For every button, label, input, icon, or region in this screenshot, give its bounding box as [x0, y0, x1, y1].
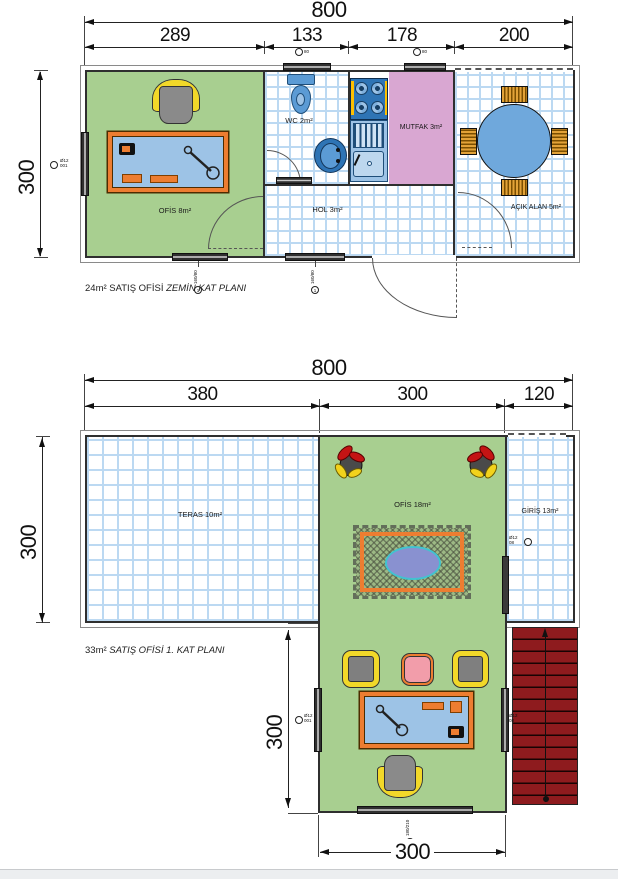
tag-left-window: Ø12001	[60, 159, 69, 169]
ext-line	[288, 813, 318, 814]
tag-circle	[295, 716, 303, 724]
tag-bottom-door18: 180/210	[406, 816, 411, 836]
dining-chair-left	[460, 128, 477, 155]
tick	[36, 622, 50, 623]
bottom-strip	[0, 869, 618, 879]
first-dim-seg3: 120	[505, 385, 573, 406]
tag-window-hol: 160/80	[311, 266, 316, 284]
first-dim-total: 800	[85, 356, 573, 380]
tick	[34, 257, 48, 258]
first-dim-inner: 300	[263, 690, 287, 750]
acik-door-dash	[462, 247, 492, 248]
window-top-mutfak	[404, 63, 446, 71]
tag-circle	[295, 48, 303, 56]
plant-icon	[330, 444, 370, 484]
entrance-door-leaf	[456, 258, 457, 318]
tag-circle	[524, 538, 532, 546]
tag-window-ofis: 160/80	[194, 266, 199, 284]
armchair-left	[342, 650, 380, 688]
arrow	[285, 631, 291, 640]
desk-paper	[422, 702, 444, 710]
window-ofis18-left	[314, 688, 322, 752]
dining-chair-bottom	[501, 179, 528, 196]
toilet-tank	[287, 74, 315, 85]
room-mutfak-label: MUTFAK 3m²	[389, 124, 453, 131]
window-ofis18-right	[501, 688, 509, 752]
room-ofis-label: OFİS 8m²	[120, 206, 230, 215]
first-dim-seg2: 300	[320, 385, 505, 406]
room-teras-floor	[87, 437, 318, 621]
tag-right-window18: Ø1208	[509, 714, 518, 724]
ground-dim-seg2: 133	[265, 26, 349, 47]
stair-arrow	[542, 628, 548, 637]
giris-open-edge	[508, 433, 566, 437]
room-wc-label: WC 2m²	[268, 116, 330, 125]
tick	[36, 436, 50, 437]
ground-dim-seg4: 200	[455, 26, 573, 47]
side-table	[402, 654, 433, 685]
dining-chair-top	[501, 86, 528, 103]
dining-chair-right	[551, 128, 568, 155]
ground-dim-seg-line	[85, 47, 573, 48]
wall-ofis-right	[263, 72, 265, 256]
office18-chair	[378, 753, 422, 797]
tag-circle	[413, 48, 421, 56]
acik-open-edge	[455, 68, 573, 72]
ground-dim-height-line	[40, 72, 41, 256]
room-hol-label: HOL 3m²	[265, 205, 390, 214]
tag-circle	[50, 161, 58, 169]
desk-paper	[450, 701, 462, 713]
desk-paper	[150, 175, 178, 183]
ofis-door-dash	[208, 248, 263, 249]
wc-shelf	[276, 177, 312, 184]
office18-desk	[360, 692, 473, 748]
ext-line	[505, 815, 506, 857]
chair-seat	[384, 755, 416, 791]
ext-line	[318, 815, 319, 857]
arrow	[39, 438, 45, 447]
arrow	[39, 613, 45, 622]
tag-top-mutfak: 80	[422, 50, 427, 55]
wall-acik-left	[453, 72, 455, 256]
arrow	[285, 798, 291, 807]
armchair-right	[452, 650, 489, 688]
first-dim-inner-line	[288, 630, 289, 808]
desk-lamp-icon	[180, 142, 224, 184]
ground-dim-height: 300	[15, 135, 39, 195]
first-dim-bottom: 300	[320, 840, 505, 864]
tag-circle-win: 1	[311, 286, 319, 294]
giris-door	[502, 556, 509, 614]
staircase	[512, 627, 578, 805]
window-ofis18-bottom	[357, 806, 473, 814]
ground-dim-seg1: 289	[85, 26, 265, 47]
office-desk	[108, 132, 228, 192]
room-giris-label: GİRİŞ 13m²	[508, 508, 572, 515]
arrow	[37, 248, 43, 257]
floorplan-canvas: 800 289 133 178 200 300	[0, 0, 618, 879]
room-teras-label: TERAS 10m²	[120, 510, 280, 519]
stair-start-dot	[543, 796, 549, 802]
window-bottom-hol	[285, 253, 345, 261]
ground-caption: 24m² SATIŞ OFİSİ ZEMİN KAT PLANI	[85, 283, 246, 294]
tag-left-window18: Ø12001	[304, 714, 313, 724]
window-ofis-left	[81, 132, 89, 196]
first-dim-seg1: 380	[85, 385, 320, 406]
room-ofis18-label: OFİS 18m²	[345, 500, 480, 509]
window-bottom-ofis	[172, 253, 228, 261]
wall-hol-top	[265, 184, 453, 186]
phone-icon	[448, 726, 464, 738]
room-hol-floor	[265, 186, 453, 256]
room-giris-floor	[507, 437, 573, 621]
rug-oval	[385, 546, 441, 580]
window-top-wc	[283, 63, 331, 71]
tag-top-wc: 80	[304, 50, 309, 55]
phone-icon	[119, 143, 135, 155]
tag-giris-wall: Ø1208	[509, 536, 518, 546]
stair-direction-line	[545, 632, 546, 802]
kitchen-counter	[350, 120, 388, 182]
ext-line	[288, 623, 318, 624]
first-dim-height: 300	[17, 500, 41, 560]
wc-sink	[314, 138, 347, 173]
office-chair	[153, 80, 199, 126]
round-table	[477, 104, 551, 178]
ground-dim-total: 800	[85, 0, 573, 22]
plant-icon	[462, 444, 502, 484]
first-dim-height-line	[42, 437, 43, 623]
first-caption: 33m² SATIŞ OFİSİ 1. KAT PLANI	[85, 645, 225, 656]
dish-rack	[353, 123, 384, 148]
desk-lamp-icon	[372, 701, 414, 741]
ground-dim-seg3: 178	[349, 26, 455, 47]
room-acik-label: AÇIK ALAN 5m²	[500, 204, 572, 211]
entrance-door-arc	[372, 258, 457, 318]
arrow	[37, 71, 43, 80]
desk-paper	[122, 174, 142, 183]
rug	[353, 525, 471, 599]
chair-seat	[159, 86, 192, 124]
stove	[350, 78, 388, 120]
